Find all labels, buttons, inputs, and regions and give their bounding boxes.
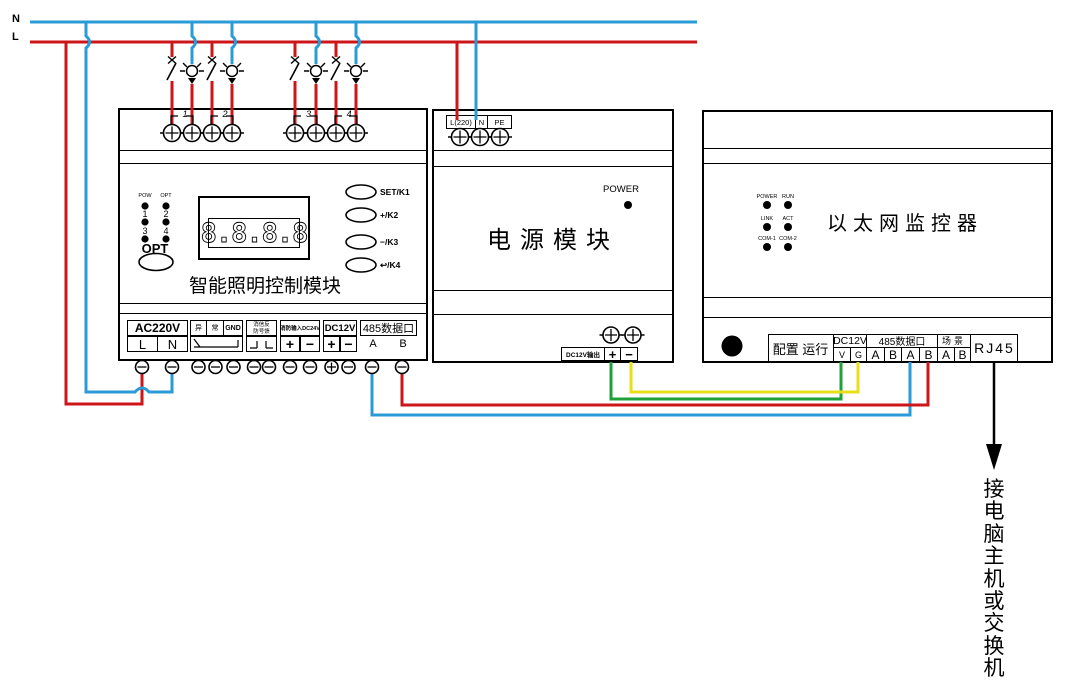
contact-symbol-abnormal	[194, 339, 238, 347]
switch-cross-icon	[168, 57, 176, 64]
lamp-arrow-icon	[352, 78, 360, 84]
lamp-bulb-icon	[187, 66, 198, 77]
switch-cross-icon	[291, 57, 299, 64]
switch-cross-icon	[208, 57, 216, 64]
function-button	[346, 258, 376, 272]
function-button	[346, 185, 376, 199]
switch-blade-icon	[167, 63, 176, 80]
eth-reset-button	[722, 336, 743, 357]
led-indicator	[141, 202, 148, 209]
eth-led-indicator	[763, 201, 771, 209]
switch-cross-icon	[332, 57, 340, 64]
lamp-arrow-icon	[228, 78, 236, 84]
led-indicator	[162, 218, 169, 225]
switch-blade-icon	[331, 63, 340, 80]
switch-blade-icon	[290, 63, 299, 80]
wiring-diagram: N L POW OPT 1 2 3 4 OPT SET/K1 +/K2 −/K3…	[0, 0, 1089, 685]
led-indicator	[141, 235, 148, 242]
eth-led-indicator	[784, 243, 792, 251]
feed-wire-n	[86, 22, 172, 392]
eth-led-indicator	[784, 223, 792, 231]
led-indicator	[162, 235, 169, 242]
wiring-layer: 12348.8.8.8	[0, 0, 1089, 685]
lamp-arrow-icon	[188, 78, 196, 84]
led-indicator	[141, 218, 148, 225]
lamp-bulb-icon	[311, 66, 322, 77]
lamp-arrow-icon	[312, 78, 320, 84]
eth-led-indicator	[763, 223, 771, 231]
relay-number-label: 1	[182, 109, 187, 119]
display-value: 8.8.8.8	[201, 218, 308, 249]
relay-number-label: 3	[306, 109, 311, 119]
arrow-head-icon	[986, 444, 1002, 470]
dc-minus-wire	[631, 362, 858, 392]
contact-symbol-fire	[250, 341, 273, 348]
eth-led-indicator	[763, 243, 771, 251]
eth-led-indicator	[784, 201, 792, 209]
lamp-bulb-icon	[227, 66, 238, 77]
switch-blade-icon	[207, 63, 216, 80]
function-button	[346, 208, 376, 222]
opt-button	[139, 254, 173, 271]
feed-wire-l	[66, 42, 142, 404]
lamp-bulb-icon	[351, 66, 362, 77]
relay-number-label: 2	[221, 109, 227, 119]
power-led-indicator	[624, 201, 632, 209]
rs485-a-wire	[372, 362, 910, 415]
led-indicator	[162, 202, 169, 209]
function-button	[346, 235, 376, 249]
relay-number-label: 4	[346, 109, 351, 119]
